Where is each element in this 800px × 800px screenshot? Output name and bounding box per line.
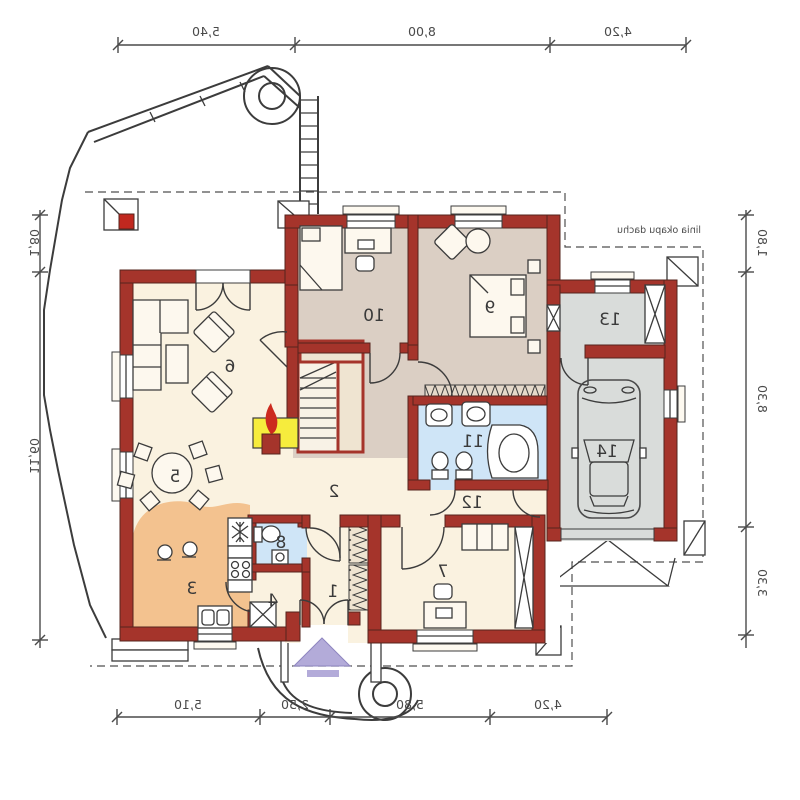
- room-label-6: 6: [225, 357, 236, 377]
- dim-bottom-1: 5,10: [174, 697, 202, 712]
- dim-bottom-3: 5,80: [396, 697, 424, 712]
- chair: [356, 256, 374, 271]
- roof-eave-annotation: linia okapu dachu: [617, 225, 701, 236]
- garage-roof-gable: [548, 540, 675, 586]
- stairs: [298, 362, 338, 452]
- dimension-right: 1,80 8,30 3,30: [738, 210, 770, 648]
- room-label-8: 8: [276, 533, 287, 553]
- dim-top-1: 5,40: [192, 24, 220, 39]
- bar-stool: [183, 542, 197, 556]
- entrance-arrow: [294, 638, 350, 677]
- dim-right-2: 8,30: [755, 385, 770, 413]
- room-label-1: 1: [328, 582, 339, 602]
- nightstand: [528, 260, 540, 273]
- chair: [434, 584, 452, 599]
- dim-right-1: 1,80: [755, 229, 770, 257]
- car-mirror: [572, 448, 578, 458]
- walkway-ladder: [300, 96, 318, 214]
- room-label-11: 11: [462, 432, 484, 452]
- cabinet: [462, 524, 508, 550]
- bed: [300, 226, 342, 290]
- garage-door: [561, 529, 654, 539]
- car-mirror: [640, 448, 646, 458]
- room-label-10: 10: [363, 306, 385, 326]
- room-label-4: 4: [268, 591, 279, 611]
- corner-bathtub: [488, 425, 539, 478]
- dim-left-2: 11,60: [27, 438, 42, 474]
- room-label-3: 3: [187, 579, 198, 599]
- toilet: [432, 452, 448, 470]
- room-label-9: 9: [485, 298, 496, 318]
- dim-bottom-4: 4,20: [534, 697, 562, 712]
- dim-right-3: 3,30: [755, 569, 770, 597]
- toilet-tank: [254, 527, 262, 542]
- room-label-13: 13: [599, 310, 621, 330]
- dim-top-2: 8,00: [408, 24, 436, 39]
- side-table: [466, 229, 490, 253]
- floor-plan-page: 1 2 3 4 5 6 7 8 9 10 11 12 13 14 linia o…: [0, 0, 800, 800]
- bar-stool: [158, 545, 172, 559]
- toilet-tank: [432, 470, 448, 479]
- dim-left-1: 1,80: [27, 229, 42, 257]
- dimension-top: 5,40 8,00 4,20: [113, 24, 691, 53]
- tree-top-icon: [244, 68, 300, 124]
- garden-well: [104, 199, 138, 230]
- room-label-12: 12: [461, 493, 483, 513]
- dimension-bottom: 5,10 2,50 5,80 4,20: [112, 697, 612, 725]
- nightstand: [528, 340, 540, 353]
- washbasin: [426, 404, 452, 426]
- washbasin: [462, 402, 490, 426]
- room-label-2: 2: [329, 482, 340, 502]
- room-label-14: 14: [596, 442, 618, 462]
- coffee-table: [166, 345, 188, 383]
- floor-plan-drawing: 1 2 3 4 5 6 7 8 9 10 11 12 13 14 linia o…: [0, 0, 800, 800]
- dim-bottom-2: 2,50: [281, 697, 309, 712]
- dimension-left: 1,80 11,60: [27, 210, 48, 648]
- room-label-5: 5: [170, 467, 181, 487]
- bidet: [456, 452, 472, 470]
- room-label-7: 7: [438, 562, 449, 582]
- dim-top-3: 4,20: [604, 24, 632, 39]
